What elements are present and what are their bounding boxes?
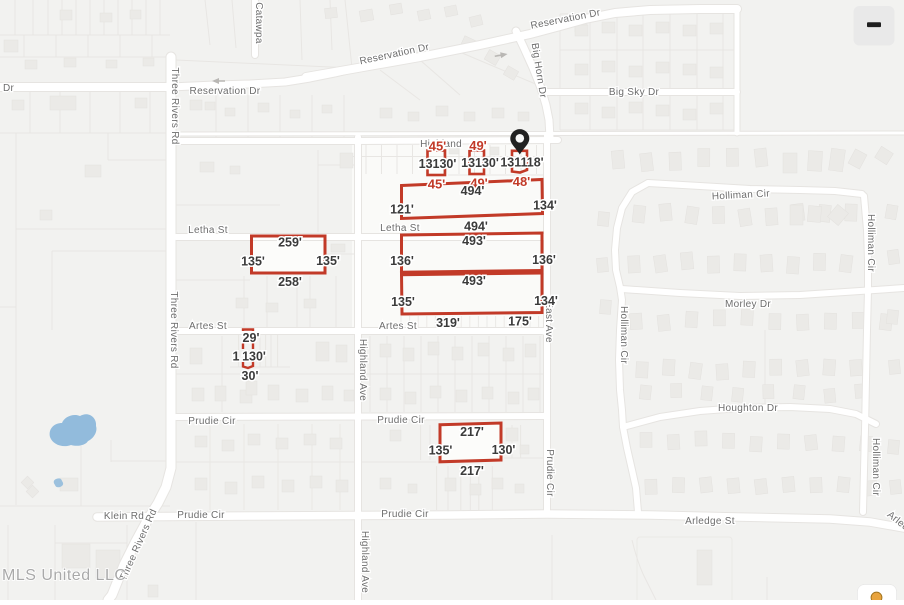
svg-text:135': 135' (429, 444, 453, 458)
svg-text:Prudie Cir: Prudie Cir (177, 510, 225, 521)
svg-text:Prudie Cir: Prudie Cir (188, 416, 236, 427)
svg-text:Highland Ave: Highland Ave (357, 339, 368, 401)
svg-text:1: 1 (233, 350, 240, 364)
svg-text:Three Rivers Rd: Three Rivers Rd (169, 67, 180, 144)
svg-text:29': 29' (243, 331, 260, 345)
svg-text:48': 48' (513, 174, 531, 189)
svg-text:494': 494' (461, 184, 485, 198)
svg-text:131118': 131118' (500, 156, 543, 170)
svg-text:175': 175' (508, 315, 532, 329)
svg-text:Letha St: Letha St (380, 223, 420, 234)
svg-text:Prudie Cir: Prudie Cir (544, 449, 555, 497)
svg-text:Letha St: Letha St (188, 225, 228, 236)
svg-text:135': 135' (241, 255, 265, 269)
svg-text:13130': 13130' (419, 157, 457, 171)
svg-text:Artes St: Artes St (189, 321, 227, 332)
svg-text:Artes St: Artes St (379, 321, 417, 332)
svg-text:258': 258' (278, 275, 302, 289)
svg-text:319': 319' (436, 316, 460, 330)
svg-text:217': 217' (460, 425, 484, 439)
svg-text:134': 134' (533, 199, 557, 213)
svg-text:Morley Dr: Morley Dr (725, 299, 771, 310)
svg-text:49': 49' (469, 138, 487, 153)
svg-text:Arledge St: Arledge St (685, 516, 735, 527)
svg-text:Houghton Dr: Houghton Dr (718, 403, 778, 414)
svg-text:Highland Ave: Highland Ave (359, 531, 370, 593)
svg-text:Prudie Cir: Prudie Cir (377, 415, 425, 426)
svg-text:45': 45' (429, 139, 447, 154)
svg-text:493': 493' (462, 274, 486, 288)
svg-text:Holliman Cir: Holliman Cir (870, 438, 881, 496)
svg-text:Catawpa: Catawpa (253, 2, 264, 44)
svg-text:259': 259' (278, 236, 302, 250)
svg-text:130': 130' (492, 443, 516, 457)
svg-text:135': 135' (391, 295, 415, 309)
svg-text:Dr: Dr (3, 83, 15, 94)
svg-text:494': 494' (464, 220, 488, 234)
svg-text:Holliman Cir: Holliman Cir (618, 306, 629, 364)
svg-text:Big Sky Dr: Big Sky Dr (609, 87, 660, 98)
svg-text:Three Rivers Rd: Three Rivers Rd (168, 291, 179, 368)
svg-text:13130': 13130' (461, 156, 499, 170)
svg-text:45': 45' (428, 177, 446, 192)
svg-text:134': 134' (534, 294, 558, 308)
svg-text:Reservation Dr: Reservation Dr (190, 86, 261, 97)
svg-text:217': 217' (460, 464, 484, 478)
svg-text:30': 30' (242, 369, 259, 383)
svg-text:493': 493' (462, 234, 486, 248)
svg-text:135': 135' (316, 254, 340, 268)
svg-text:MLS United LLC: MLS United LLC (2, 567, 126, 584)
svg-text:Prudie Cir: Prudie Cir (381, 509, 429, 520)
svg-text:136': 136' (532, 253, 556, 267)
svg-text:Holliman Cir: Holliman Cir (865, 214, 876, 272)
svg-text:Klein Rd: Klein Rd (104, 511, 144, 522)
svg-text:121': 121' (390, 203, 414, 217)
svg-text:136': 136' (390, 254, 414, 268)
svg-text:130': 130' (242, 350, 266, 364)
